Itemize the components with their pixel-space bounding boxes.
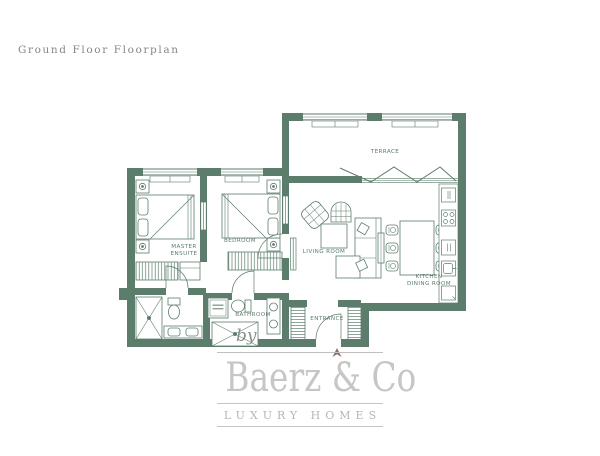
- coffee-table: [321, 224, 347, 248]
- dining-chair: [386, 261, 398, 271]
- master-bed: [136, 195, 194, 239]
- label-living-room: LIVING ROOM: [303, 249, 345, 255]
- windows: [143, 114, 458, 184]
- brand-tagline-box: LUXURY HOMES: [217, 403, 383, 427]
- double-vanity: [164, 326, 202, 338]
- dining-chair: [386, 225, 398, 235]
- label-master-2: ENSUITE: [171, 251, 198, 257]
- fridge-icon: [442, 188, 456, 202]
- toilet-icon: [168, 298, 180, 319]
- master-desk: [180, 262, 200, 280]
- brand-tagline: LUXURY HOMES: [217, 409, 383, 422]
- hob-icon: [442, 210, 456, 226]
- nightstand-icon: [267, 180, 280, 193]
- dining-chair: [386, 243, 398, 253]
- ensuite-bath-fixtures: [136, 297, 202, 339]
- entrance-closet-right: [348, 305, 361, 341]
- window-bedroom: [221, 169, 263, 183]
- armchair-arched: [331, 202, 351, 222]
- dining-table: [400, 221, 434, 275]
- window-terrace-2: [382, 114, 452, 128]
- entrance-closet-left: [291, 305, 305, 341]
- label-terrace: TERRACE: [370, 149, 400, 155]
- bathroom-door: [232, 271, 254, 293]
- nightstand-icon: [267, 238, 280, 251]
- label-kitchen-1: KITCHEN: [415, 274, 442, 280]
- oven-icon: [442, 240, 456, 255]
- master-wardrobe: [136, 262, 178, 280]
- brand-logo: Baerz & Co LUXURY HOMES: [209, 352, 391, 427]
- window-terrace-1: [303, 114, 367, 128]
- label-master-1: MASTER: [171, 244, 196, 250]
- window-master: [143, 169, 197, 183]
- nightstand-icon: [136, 240, 149, 253]
- entrance-fixtures: [291, 305, 361, 341]
- shower-icon: [136, 297, 162, 339]
- label-entrance: ENTRANCE: [310, 316, 344, 322]
- bedroom-chest: [228, 252, 282, 270]
- living-room-furniture: [300, 200, 384, 278]
- label-bathroom: BATHROOM: [235, 312, 271, 318]
- toilet-icon: [232, 300, 252, 312]
- watermark-by: by: [236, 326, 257, 346]
- washing-machine-icon: [208, 298, 228, 318]
- label-bedroom: BEDROOM: [224, 238, 256, 244]
- bedroom-bed: [222, 194, 280, 238]
- brand-rule-top: [217, 352, 383, 353]
- floorplan-page: { "page_title": "Ground Floor Floorplan"…: [0, 0, 600, 456]
- master-bedroom-furniture: [136, 180, 200, 280]
- side-table: [378, 233, 384, 263]
- nightstand-icon: [136, 180, 149, 193]
- cabinet-icon: [442, 286, 456, 300]
- sink-icon: [442, 261, 457, 276]
- bedroom-furniture: [222, 180, 282, 270]
- brand-name: Baerz & Co: [225, 357, 374, 399]
- label-kitchen-2: DINING ROOM: [407, 281, 451, 287]
